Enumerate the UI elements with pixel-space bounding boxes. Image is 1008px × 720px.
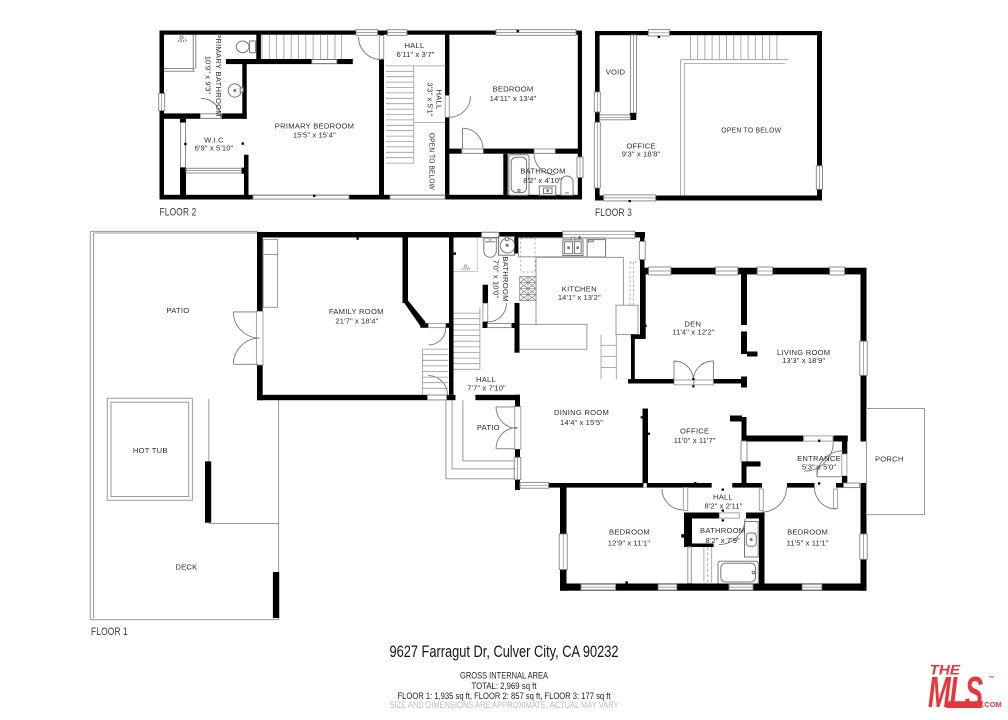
svg-text:11'0" x 11'7": 11'0" x 11'7" (674, 436, 716, 445)
svg-text:OPEN TO BELOW: OPEN TO BELOW (428, 133, 437, 190)
svg-text:FLOOR 2: FLOOR 2 (160, 206, 197, 218)
svg-text:11'4" x 12'2": 11'4" x 12'2" (672, 328, 715, 337)
svg-text:BATHROOM: BATHROOM (501, 256, 510, 301)
svg-text:OPEN TO BELOW: OPEN TO BELOW (721, 126, 782, 135)
svg-text:SIZE AND DIMENSIONS ARE APPROX: SIZE AND DIMENSIONS ARE APPROXIMATE, ACT… (390, 700, 619, 710)
svg-text:14'4" x 15'5": 14'4" x 15'5" (560, 418, 603, 427)
svg-text:HALL: HALL (435, 90, 444, 110)
svg-text:™: ™ (989, 675, 995, 682)
svg-text:PORCH: PORCH (875, 455, 904, 464)
svg-text:8'2" x 7'9": 8'2" x 7'9" (706, 536, 741, 545)
svg-text:14'1" x 13'2": 14'1" x 13'2" (558, 293, 601, 302)
svg-text:BATHROOM: BATHROOM (520, 167, 565, 176)
svg-text:7'7" x 7'10": 7'7" x 7'10" (467, 383, 506, 392)
svg-text:7'0" x 10'0": 7'0" x 10'0" (492, 260, 501, 299)
svg-text:.COM: .COM (982, 700, 1002, 709)
svg-text:DECK: DECK (175, 563, 197, 572)
svg-text:13'3" x 18'9": 13'3" x 18'9" (782, 356, 825, 365)
svg-text:FAMILY ROOM: FAMILY ROOM (329, 307, 384, 316)
svg-text:9'3" x 18'8": 9'3" x 18'8" (622, 150, 661, 159)
svg-text:TOTAL: 2,969 sq ft: TOTAL: 2,969 sq ft (472, 681, 537, 691)
svg-text:PRIMARY BEDROOM: PRIMARY BEDROOM (275, 121, 354, 130)
svg-text:BATHROOM: BATHROOM (700, 526, 745, 535)
svg-text:9627 Farragut Dr, Culver City,: 9627 Farragut Dr, Culver City, CA 90232 (390, 643, 619, 661)
svg-text:BEDROOM: BEDROOM (787, 528, 828, 537)
svg-text:DINING ROOM: DINING ROOM (554, 408, 609, 417)
svg-text:12'9" x 11'1": 12'9" x 11'1" (608, 539, 651, 548)
svg-text:MLS: MLS (928, 667, 984, 716)
svg-text:BEDROOM: BEDROOM (609, 528, 650, 537)
svg-text:8'2" x 2'11": 8'2" x 2'11" (704, 501, 742, 510)
svg-text:6'11" x 3'7": 6'11" x 3'7" (396, 50, 434, 59)
svg-text:6'9" x 5'10": 6'9" x 5'10" (195, 144, 234, 153)
svg-text:FLOOR 3: FLOOR 3 (595, 207, 632, 219)
svg-text:VOID: VOID (606, 68, 626, 77)
svg-text:HALL: HALL (405, 41, 425, 50)
svg-text:15'5" x 15'4": 15'5" x 15'4" (293, 130, 336, 139)
svg-text:BEDROOM: BEDROOM (493, 85, 534, 94)
svg-text:GROSS INTERNAL AREA: GROSS INTERNAL AREA (460, 671, 549, 681)
svg-text:FLOOR 1: FLOOR 1 (91, 626, 128, 638)
svg-text:PRIMARY BATHROOM: PRIMARY BATHROOM (214, 33, 223, 117)
svg-text:8'2" x 4'10": 8'2" x 4'10" (523, 176, 562, 185)
svg-text:21'7" x 18'4": 21'7" x 18'4" (335, 317, 378, 326)
svg-text:PATIO: PATIO (167, 306, 190, 315)
svg-text:3'3" x 5'1": 3'3" x 5'1" (426, 82, 435, 117)
svg-text:OFFICE: OFFICE (680, 427, 709, 436)
svg-text:HOT TUB: HOT TUB (133, 446, 168, 455)
svg-text:11'5" x 11'1": 11'5" x 11'1" (787, 539, 829, 548)
svg-text:5'3" x 5'0": 5'3" x 5'0" (802, 463, 837, 472)
svg-text:10'9" x 9'3": 10'9" x 9'3" (204, 56, 213, 95)
svg-text:14'11" x 13'4": 14'11" x 13'4" (490, 94, 537, 103)
svg-text:PATIO: PATIO (477, 423, 500, 432)
